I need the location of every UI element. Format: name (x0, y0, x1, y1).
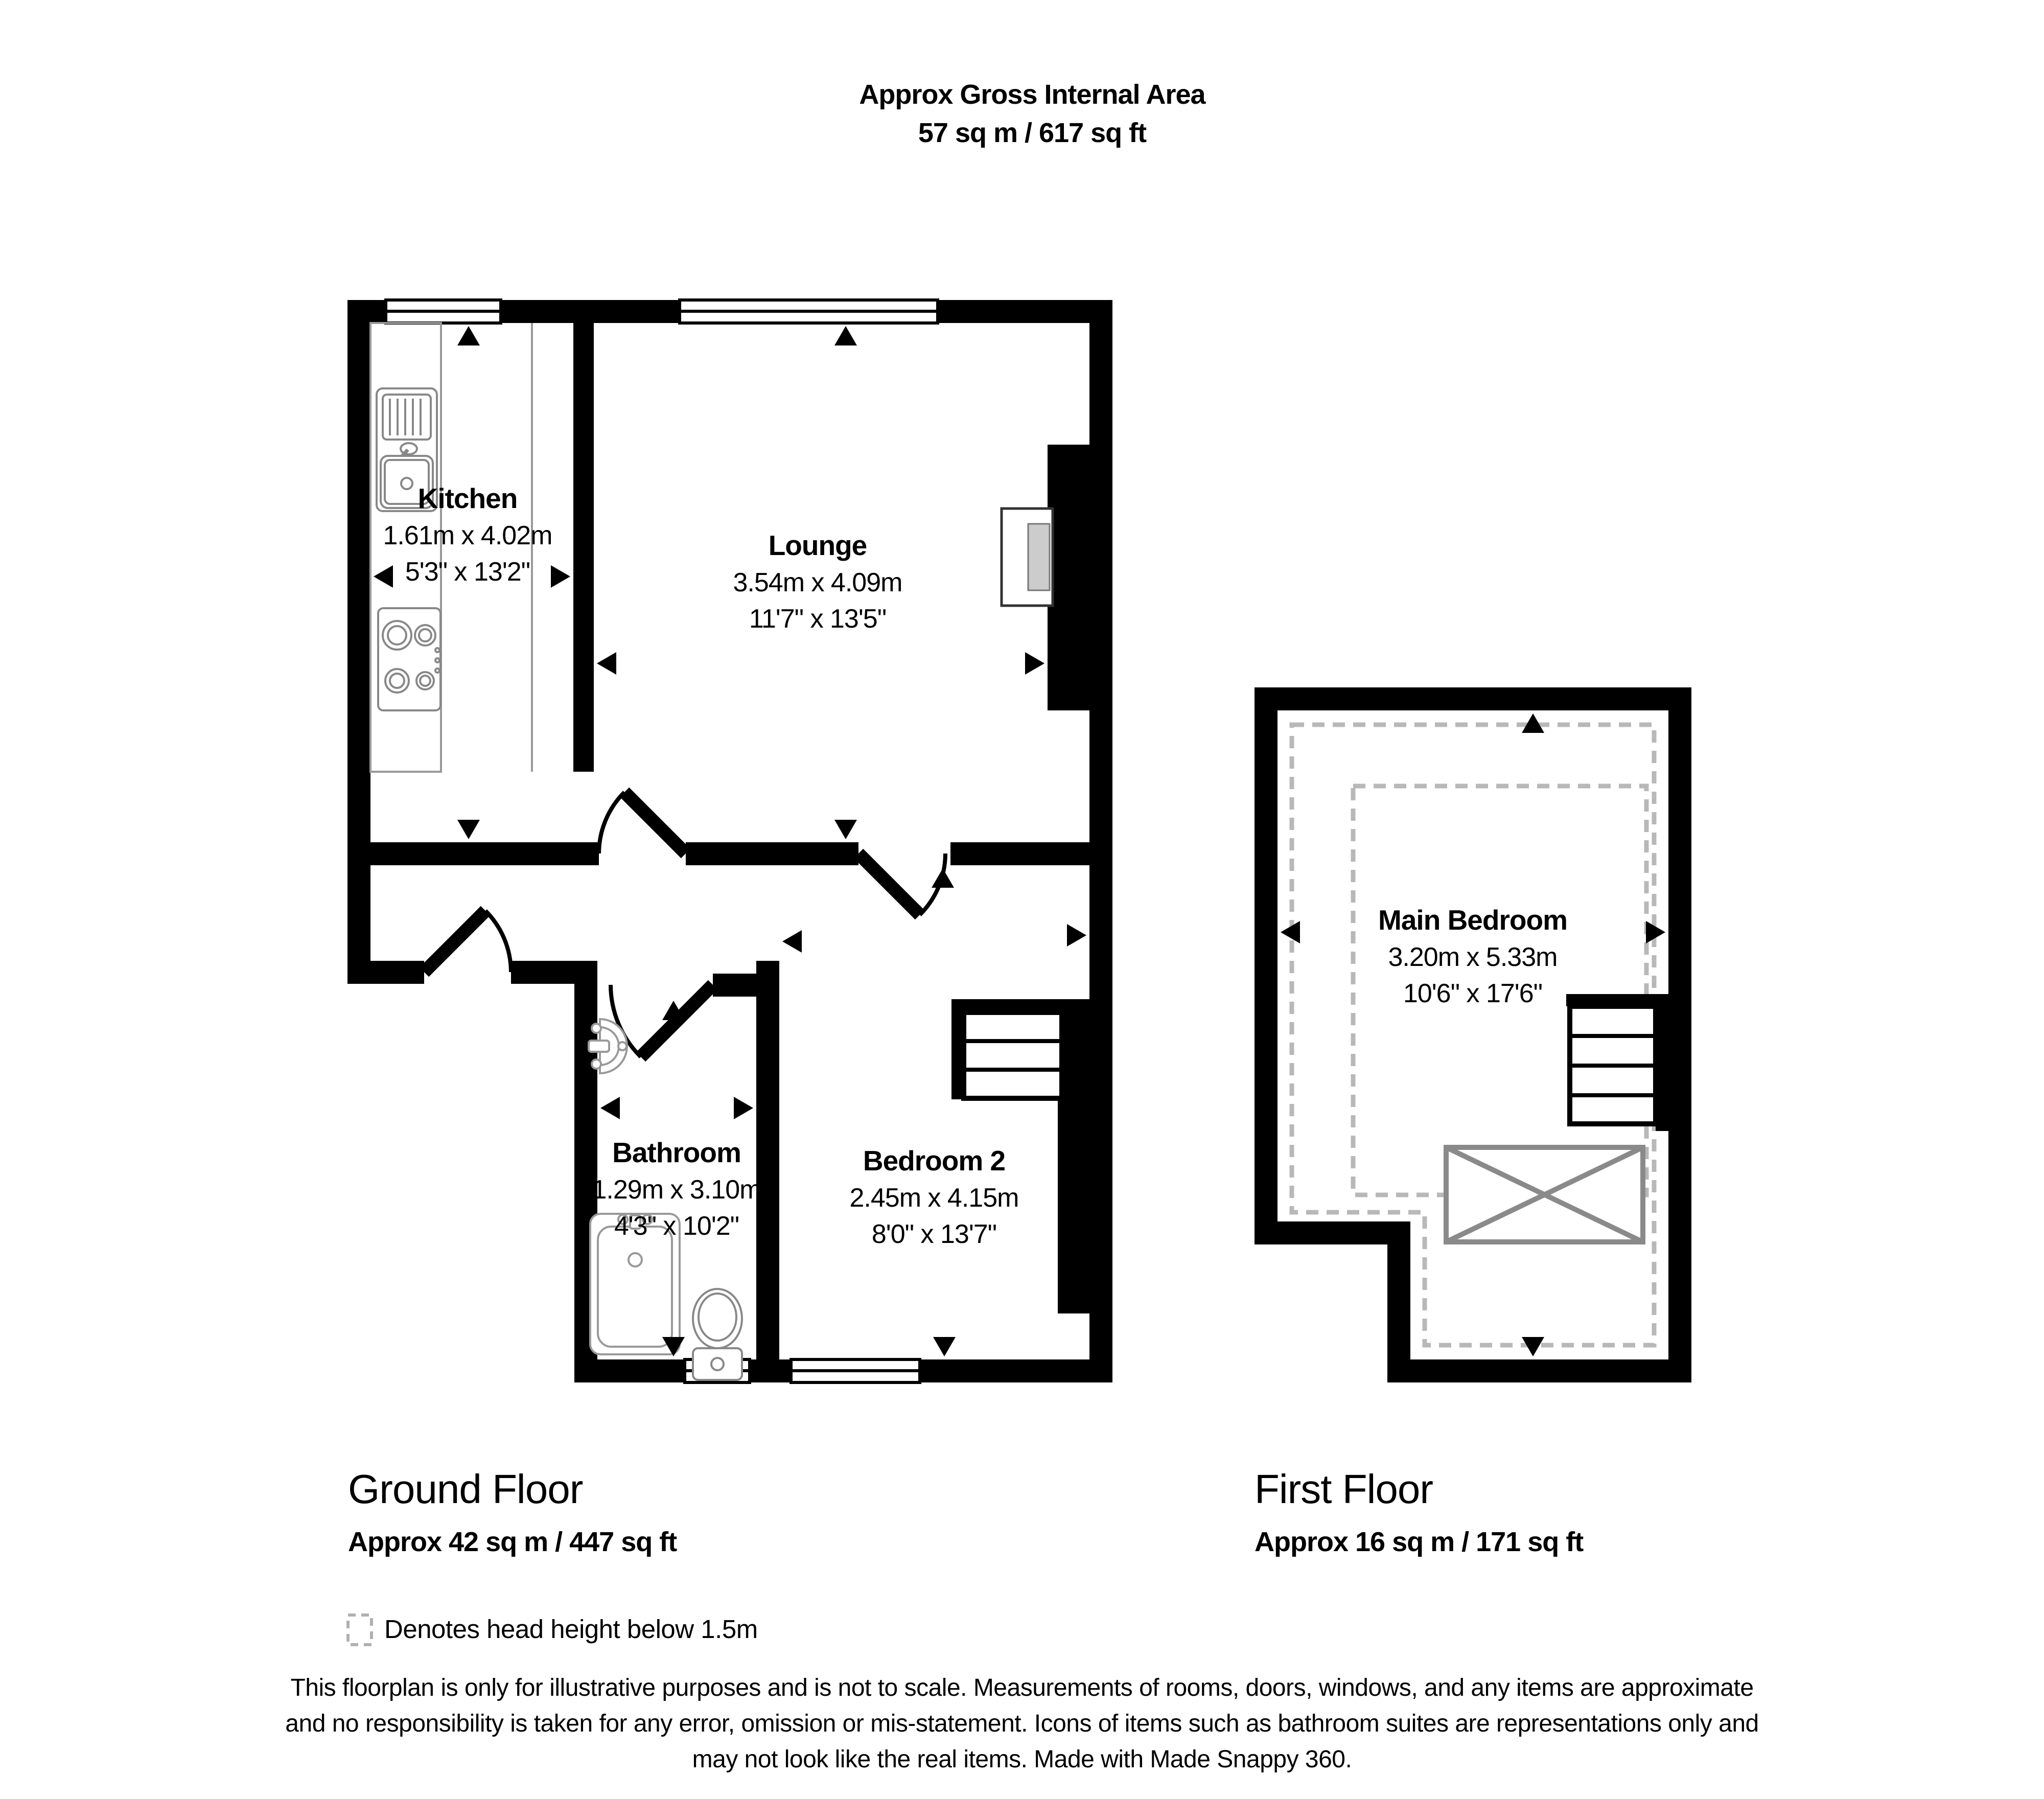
arrow-left-icon (597, 652, 616, 675)
wall (511, 961, 574, 984)
first-floor-area: Approx 16 sq m / 171 sq ft (1255, 1526, 1583, 1558)
room-dim-imperial: 5'3" x 13'2" (314, 554, 621, 590)
arrow-left-icon (782, 930, 802, 953)
room-dim-metric: 3.54m x 4.09m (664, 565, 971, 601)
wall (686, 842, 858, 865)
fireplace-icon (1002, 509, 1053, 606)
wall (347, 300, 370, 984)
room-name: Lounge (664, 526, 971, 565)
wall (713, 974, 756, 997)
disclaimer-line3: may not look like the real items. Made w… (0, 1742, 2044, 1778)
plan-title-line2: 57 sq m / 617 sq ft (572, 114, 1492, 152)
plan-title: Approx Gross Internal Area 57 sq m / 617… (572, 76, 1492, 152)
room-label-lounge: Lounge 3.54m x 4.09m 11'7" x 13'5" (664, 526, 971, 637)
roof-window-icon (1446, 1147, 1643, 1242)
wall (347, 961, 424, 984)
room-dim-imperial: 11'7" x 13'5" (664, 601, 971, 637)
toilet-icon (693, 1289, 742, 1380)
floorplan-canvas (0, 0, 2044, 1799)
wall (1089, 300, 1112, 1382)
ground-floor-label: Ground Floor (348, 1466, 583, 1513)
plan-title-line1: Approx Gross Internal Area (572, 76, 1492, 114)
door-icon (858, 854, 945, 915)
disclaimer-line1: This floorplan is only for illustrative … (0, 1670, 2044, 1706)
window-icon (680, 300, 938, 323)
room-name: Kitchen (314, 479, 621, 518)
arrow-up-icon (457, 326, 480, 345)
arrow-left-icon (600, 1097, 620, 1119)
arrow-down-icon (457, 820, 480, 839)
wall (1387, 1359, 1691, 1382)
room-label-main-bedroom: Main Bedroom 3.20m x 5.33m 10'6" x 17'6" (1319, 901, 1626, 1011)
first-floor-label: First Floor (1255, 1466, 1433, 1513)
room-label-bedroom-2: Bedroom 2 2.45m x 4.15m 8'0" x 13'7" (781, 1142, 1087, 1252)
window-icon (791, 1359, 920, 1382)
stairs-icon (1566, 994, 1670, 1131)
arrow-right-icon (1025, 652, 1044, 675)
door-icons (424, 792, 945, 1057)
arrow-up-icon (932, 868, 954, 888)
arrow-up-icon (834, 326, 857, 345)
wall (370, 842, 599, 865)
wall (1255, 1221, 1410, 1244)
wall (1255, 687, 1277, 1229)
room-dim-metric: 2.45m x 4.15m (781, 1180, 1087, 1216)
window-icon (386, 300, 501, 323)
legend-label: Denotes head height below 1.5m (384, 1614, 758, 1644)
door-icon (599, 792, 686, 854)
wall (1387, 1221, 1410, 1382)
room-dim-metric: 3.20m x 5.33m (1319, 939, 1626, 976)
arrow-right-icon (1067, 924, 1086, 947)
wall (1668, 687, 1691, 1382)
wall (950, 842, 1089, 865)
arrow-right-icon (734, 1097, 753, 1119)
floorplan-page: Approx Gross Internal Area 57 sq m / 617… (0, 0, 2044, 1799)
stairs-icon (951, 999, 1065, 1099)
disclaimer-line2: and no responsibility is taken for any e… (0, 1706, 2044, 1742)
wall (1255, 687, 1691, 710)
room-label-kitchen: Kitchen 1.61m x 4.02m 5'3" x 13'2" (314, 479, 621, 590)
room-dim-imperial: 8'0" x 13'7" (781, 1216, 1087, 1253)
ground-floor-area: Approx 42 sq m / 447 sq ft (348, 1526, 677, 1558)
arrow-down-icon (834, 820, 857, 839)
room-dim-imperial: 10'6" x 17'6" (1319, 976, 1626, 1012)
room-name: Bedroom 2 (781, 1142, 1087, 1180)
hob-icon (378, 608, 440, 710)
first-floor-plan (1255, 687, 1691, 1382)
door-icon (424, 911, 511, 972)
room-name: Main Bedroom (1319, 901, 1626, 939)
room-dim-metric: 1.61m x 4.02m (314, 518, 621, 554)
arrow-down-icon (933, 1337, 956, 1356)
legend-swatch (348, 1615, 371, 1645)
